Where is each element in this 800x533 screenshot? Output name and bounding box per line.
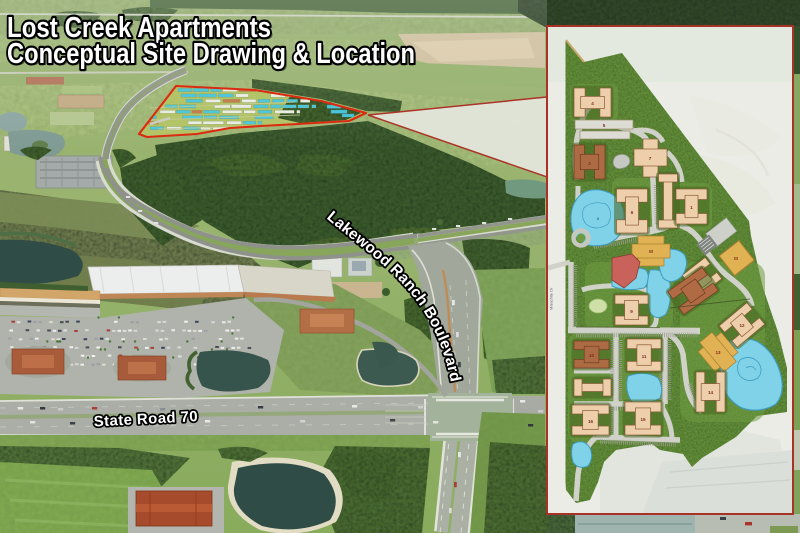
svg-text:9: 9	[630, 309, 633, 314]
svg-text:Malachite Dr: Malachite Dr	[549, 287, 554, 310]
svg-text:16: 16	[588, 419, 594, 424]
svg-text:11: 11	[642, 354, 647, 359]
svg-text:10: 10	[589, 353, 595, 358]
svg-text:1: 1	[690, 205, 693, 210]
svg-text:4: 4	[591, 101, 594, 106]
svg-text:12: 12	[739, 323, 745, 328]
svg-text:13: 13	[715, 350, 721, 355]
svg-text:2: 2	[588, 161, 591, 166]
svg-text:15: 15	[640, 417, 646, 422]
svg-text:6: 6	[631, 210, 634, 215]
svg-text:III: III	[649, 249, 653, 254]
svg-text:5: 5	[603, 123, 606, 128]
svg-text:III: III	[734, 256, 738, 261]
svg-text:7: 7	[649, 156, 652, 161]
svg-text:14: 14	[708, 390, 714, 395]
svg-text:Conceptual Site Drawing & Loca: Conceptual Site Drawing & Location	[7, 38, 415, 70]
